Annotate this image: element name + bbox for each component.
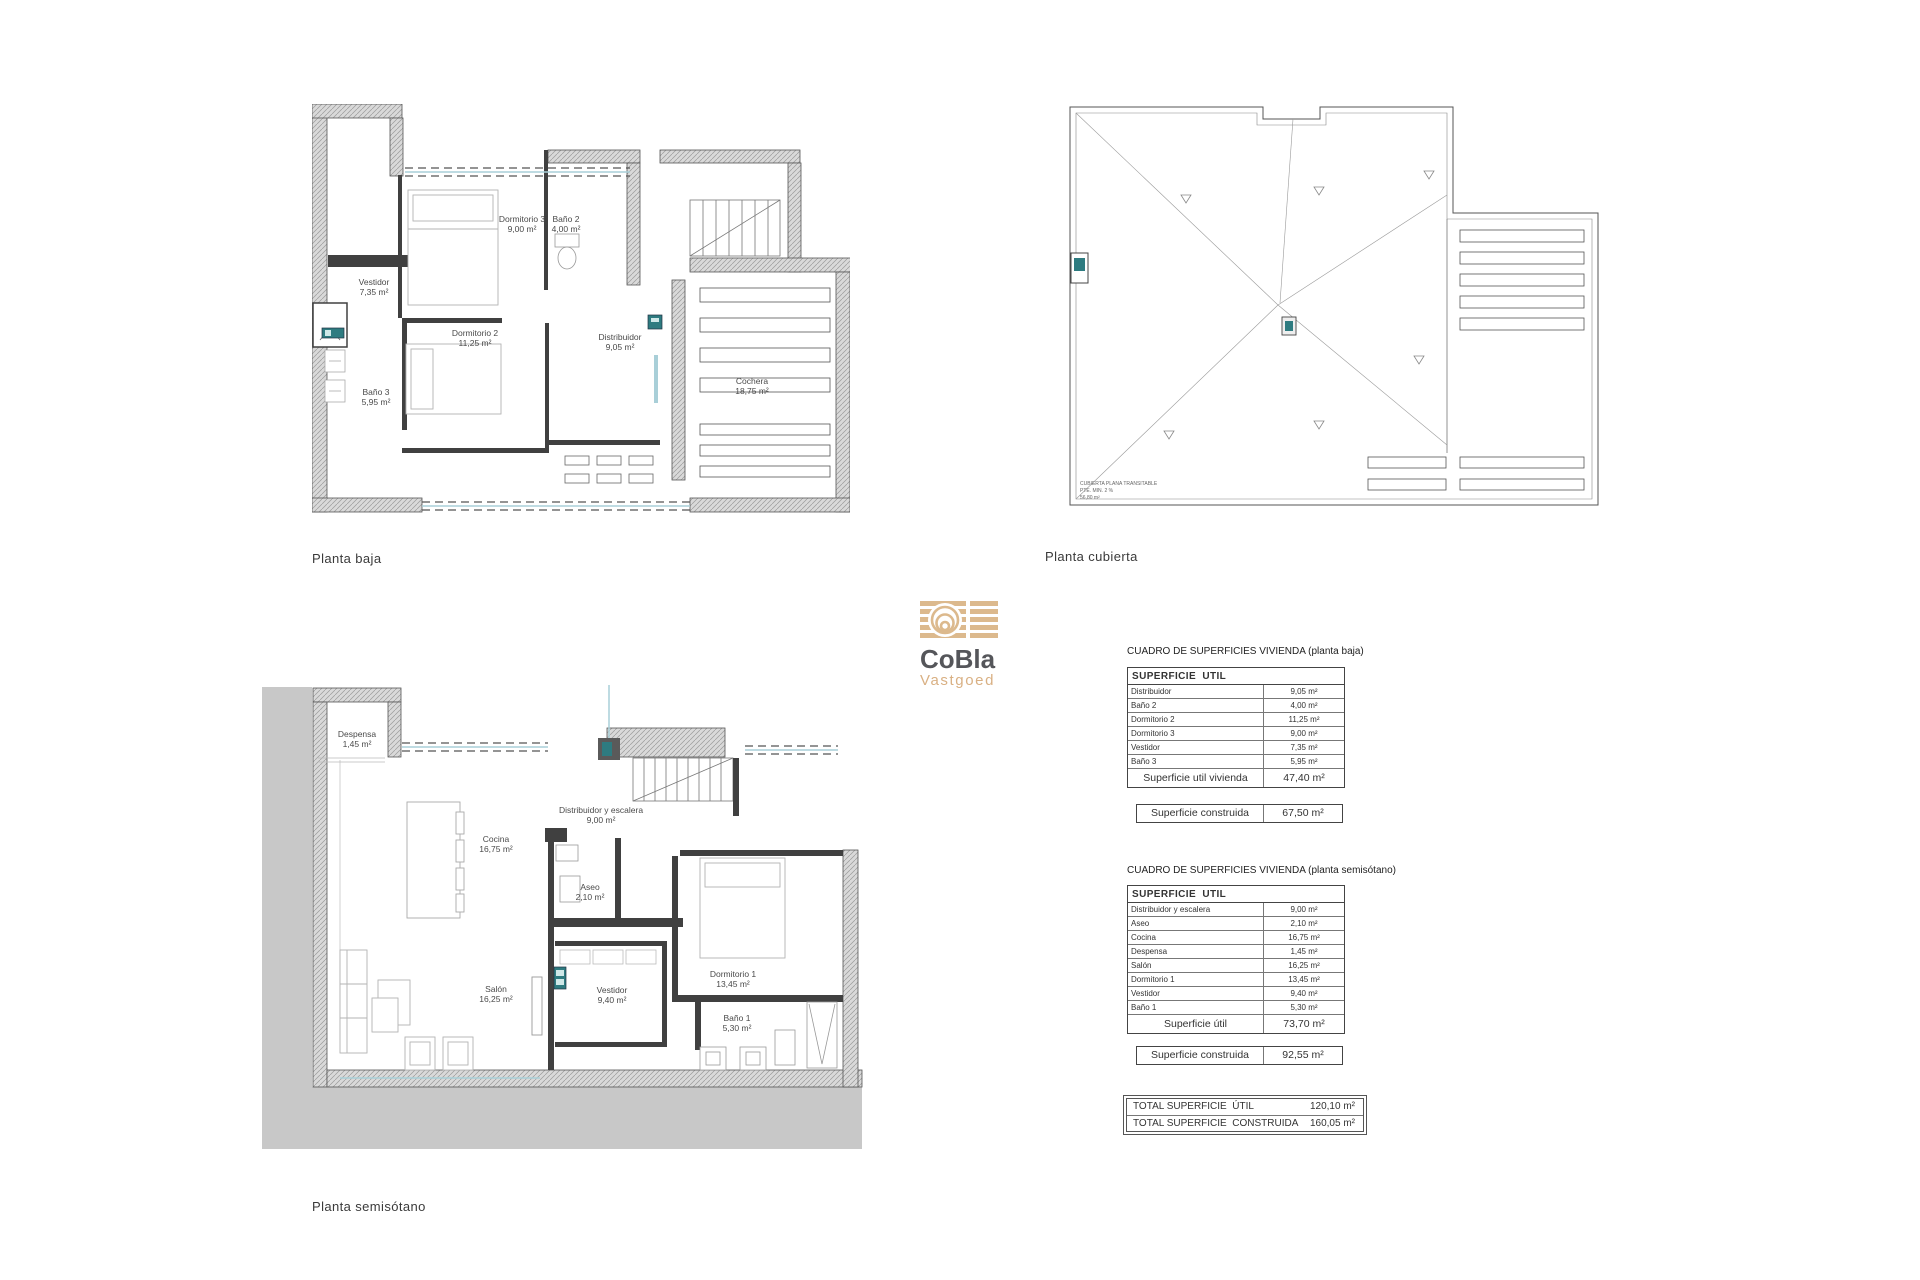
svg-text:11,25 m²: 11,25 m² bbox=[459, 338, 492, 348]
logo-sub-text: Vastgoed bbox=[920, 672, 1030, 689]
total-util-row: TOTAL SUPERFICIE ÚTIL 120,10 m² bbox=[1127, 1099, 1363, 1115]
shower-bano3 bbox=[313, 303, 347, 347]
table-row: Distribuidor y escalera9,00 m² bbox=[1128, 903, 1344, 917]
svg-text:Cochera: Cochera bbox=[736, 376, 768, 386]
svg-text:16,25 m²: 16,25 m² bbox=[479, 994, 513, 1004]
total-construida-row: TOTAL SUPERFICIE CONSTRUIDA 160,05 m² bbox=[1127, 1115, 1363, 1131]
table-row: Baño 35,95 m² bbox=[1128, 755, 1344, 769]
svg-text:CUBIERTA PLANA TRANSITABLE: CUBIERTA PLANA TRANSITABLE bbox=[1080, 481, 1158, 487]
svg-text:Distribuidor y escalera: Distribuidor y escalera bbox=[559, 805, 643, 815]
svg-text:9,05 m²: 9,05 m² bbox=[606, 342, 635, 352]
window-glass bbox=[654, 355, 658, 403]
pergola-slats bbox=[1368, 230, 1584, 490]
table-row: Vestidor9,40 m² bbox=[1128, 987, 1344, 1001]
svg-text:56,80 m²: 56,80 m² bbox=[1080, 495, 1100, 501]
svg-text:Vestidor: Vestidor bbox=[597, 985, 628, 995]
svg-text:Salón: Salón bbox=[485, 984, 507, 994]
despensa-shelves bbox=[318, 758, 385, 762]
svg-text:Aseo: Aseo bbox=[580, 882, 600, 892]
table-row: Baño 24,00 m² bbox=[1128, 699, 1344, 713]
bath-fixtures-bano3 bbox=[325, 350, 345, 402]
cobla-logo-mark bbox=[920, 600, 998, 640]
table-planta-baja: SUPERFICIE UTIL Distribuidor9,05 m² Baño… bbox=[1127, 667, 1345, 788]
svg-text:9,00 m²: 9,00 m² bbox=[587, 815, 616, 825]
wardrobe bbox=[560, 950, 656, 964]
table-header: SUPERFICIE UTIL bbox=[1128, 668, 1344, 685]
label-planta-cubierta: Planta cubierta bbox=[1045, 549, 1138, 564]
table-title-baja: CUADRO DE SUPERFICIES VIVIENDA (planta b… bbox=[1127, 646, 1371, 657]
table-row: Vestidor7,35 m² bbox=[1128, 741, 1344, 755]
svg-text:7,35 m²: 7,35 m² bbox=[360, 287, 389, 297]
table-title-semisotano: CUADRO DE SUPERFICIES VIVIENDA (planta s… bbox=[1127, 865, 1371, 876]
bed-dormitorio1 bbox=[700, 858, 785, 958]
table-header: SUPERFICIE UTIL bbox=[1128, 886, 1344, 903]
label-planta-semisotano: Planta semisótano bbox=[312, 1199, 426, 1214]
table-row: Baño 15,30 m² bbox=[1128, 1001, 1344, 1015]
table-row: Dormitorio 39,00 m² bbox=[1128, 727, 1344, 741]
svg-text:9,00 m²: 9,00 m² bbox=[508, 224, 537, 234]
slope-arrows bbox=[1164, 171, 1434, 439]
stairs bbox=[633, 758, 739, 816]
vent-icon bbox=[598, 685, 620, 760]
label-planta-baja: Planta baja bbox=[312, 551, 381, 566]
table-row: Cocina16,75 m² bbox=[1128, 931, 1344, 945]
svg-text:Vestidor: Vestidor bbox=[359, 277, 390, 287]
svg-text:Despensa: Despensa bbox=[338, 729, 377, 739]
logo-brand-text: CoBla bbox=[920, 646, 1030, 672]
toilet-bano2 bbox=[555, 234, 579, 269]
svg-text:Cocina: Cocina bbox=[483, 834, 510, 844]
table-row: Dormitorio 113,45 m² bbox=[1128, 973, 1344, 987]
surface-tables: CUADRO DE SUPERFICIES VIVIENDA (planta b… bbox=[1127, 646, 1371, 1135]
svg-text:9,40 m²: 9,40 m² bbox=[598, 995, 627, 1005]
svg-text:PTE. MIN. 2 %: PTE. MIN. 2 % bbox=[1080, 488, 1114, 494]
svg-text:Dormitorio 1: Dormitorio 1 bbox=[710, 969, 757, 979]
table-row: Dormitorio 211,25 m² bbox=[1128, 713, 1344, 727]
bed-dormitorio3 bbox=[408, 190, 498, 305]
chimney-icons bbox=[1071, 253, 1296, 335]
table-row: Distribuidor9,05 m² bbox=[1128, 685, 1344, 699]
svg-text:Distribuidor: Distribuidor bbox=[599, 332, 642, 342]
built-surface-baja: Superficie construida 67,50 m² bbox=[1136, 804, 1343, 823]
bano1-fixtures bbox=[700, 1002, 837, 1070]
floorplan-planta-cubierta: CUBIERTA PLANA TRANSITABLE PTE. MIN. 2 %… bbox=[1068, 105, 1600, 507]
floorplan-planta-baja: Dormitorio 3 9,00 m² Baño 2 4,00 m² Vest… bbox=[312, 104, 850, 516]
svg-text:Baño 1: Baño 1 bbox=[724, 1013, 751, 1023]
built-surface-semisotano: Superficie construida 92,55 m² bbox=[1136, 1046, 1343, 1065]
interior-walls bbox=[545, 828, 843, 1070]
hatched-walls bbox=[312, 104, 850, 512]
roof-note: CUBIERTA PLANA TRANSITABLE PTE. MIN. 2 %… bbox=[1080, 481, 1158, 501]
svg-text:Dormitorio 2: Dormitorio 2 bbox=[452, 328, 499, 338]
svg-text:5,30 m²: 5,30 m² bbox=[723, 1023, 752, 1033]
table-row: Salón16,25 m² bbox=[1128, 959, 1344, 973]
stairs bbox=[690, 200, 780, 256]
totals-table: TOTAL SUPERFICIE ÚTIL 120,10 m² TOTAL SU… bbox=[1123, 1095, 1367, 1135]
svg-text:2,10 m²: 2,10 m² bbox=[576, 892, 605, 902]
svg-text:Baño 3: Baño 3 bbox=[363, 387, 390, 397]
floorplan-planta-semisotano: Despensa 1,45 m² Cocina 16,75 m² Distrib… bbox=[260, 680, 870, 1155]
svg-text:Dormitorio 3: Dormitorio 3 bbox=[499, 214, 546, 224]
bed-dormitorio2 bbox=[406, 344, 501, 414]
roof-outline bbox=[1070, 107, 1598, 505]
svg-text:Baño 2: Baño 2 bbox=[553, 214, 580, 224]
coffee-tables bbox=[405, 977, 542, 1070]
svg-text:16,75 m²: 16,75 m² bbox=[479, 844, 513, 854]
table-row: Aseo2,10 m² bbox=[1128, 917, 1344, 931]
svg-text:5,95 m²: 5,95 m² bbox=[362, 397, 391, 407]
sofa bbox=[340, 950, 410, 1053]
cobla-logo: CoBla Vastgoed bbox=[920, 600, 1030, 689]
table-row: Despensa1,45 m² bbox=[1128, 945, 1344, 959]
table-planta-semisotano: SUPERFICIE UTIL Distribuidor y escalera9… bbox=[1127, 885, 1345, 1034]
table-total-row: Superficie útil73,70 m² bbox=[1128, 1015, 1344, 1033]
svg-text:18,75 m²: 18,75 m² bbox=[735, 386, 769, 396]
svg-text:4,00 m²: 4,00 m² bbox=[552, 224, 581, 234]
svg-text:1,45 m²: 1,45 m² bbox=[343, 739, 372, 749]
floor-grating-dashes bbox=[565, 456, 653, 483]
roof-slope-lines bbox=[1076, 113, 1447, 499]
svg-text:13,45 m²: 13,45 m² bbox=[716, 979, 750, 989]
table-total-row: Superficie util vivienda47,40 m² bbox=[1128, 769, 1344, 787]
water-heater-icon bbox=[554, 967, 566, 989]
